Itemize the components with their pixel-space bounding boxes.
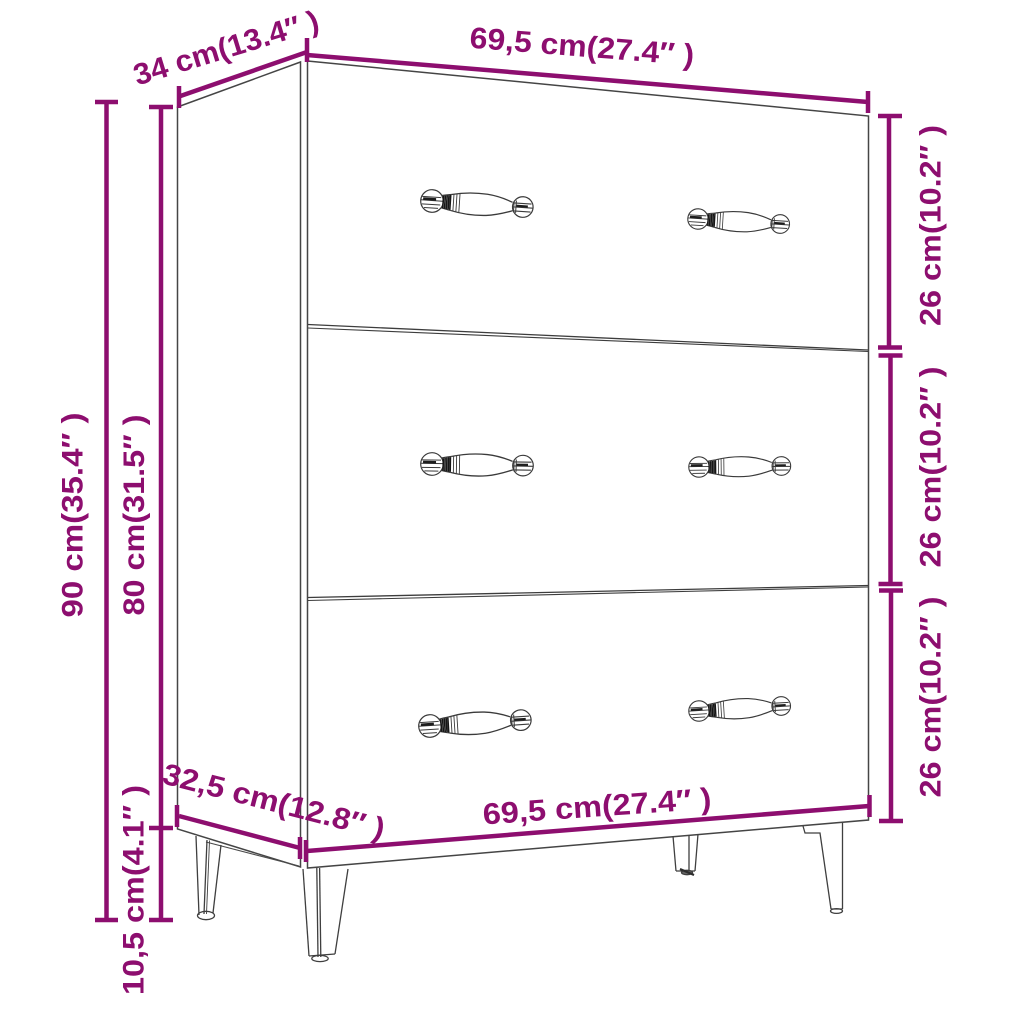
svg-text:26 cm(10.2″ ): 26 cm(10.2″ )	[915, 597, 948, 798]
svg-text:80 cm(31.5″ ): 80 cm(31.5″ )	[118, 415, 151, 616]
svg-text:26 cm(10.2″ ): 26 cm(10.2″ )	[915, 367, 948, 568]
svg-text:26 cm(10.2″ ): 26 cm(10.2″ )	[915, 125, 948, 326]
svg-text:90 cm(35.4″ ): 90 cm(35.4″ )	[57, 413, 90, 618]
svg-text:10,5 cm(4.1″ ): 10,5 cm(4.1″ )	[118, 785, 151, 995]
